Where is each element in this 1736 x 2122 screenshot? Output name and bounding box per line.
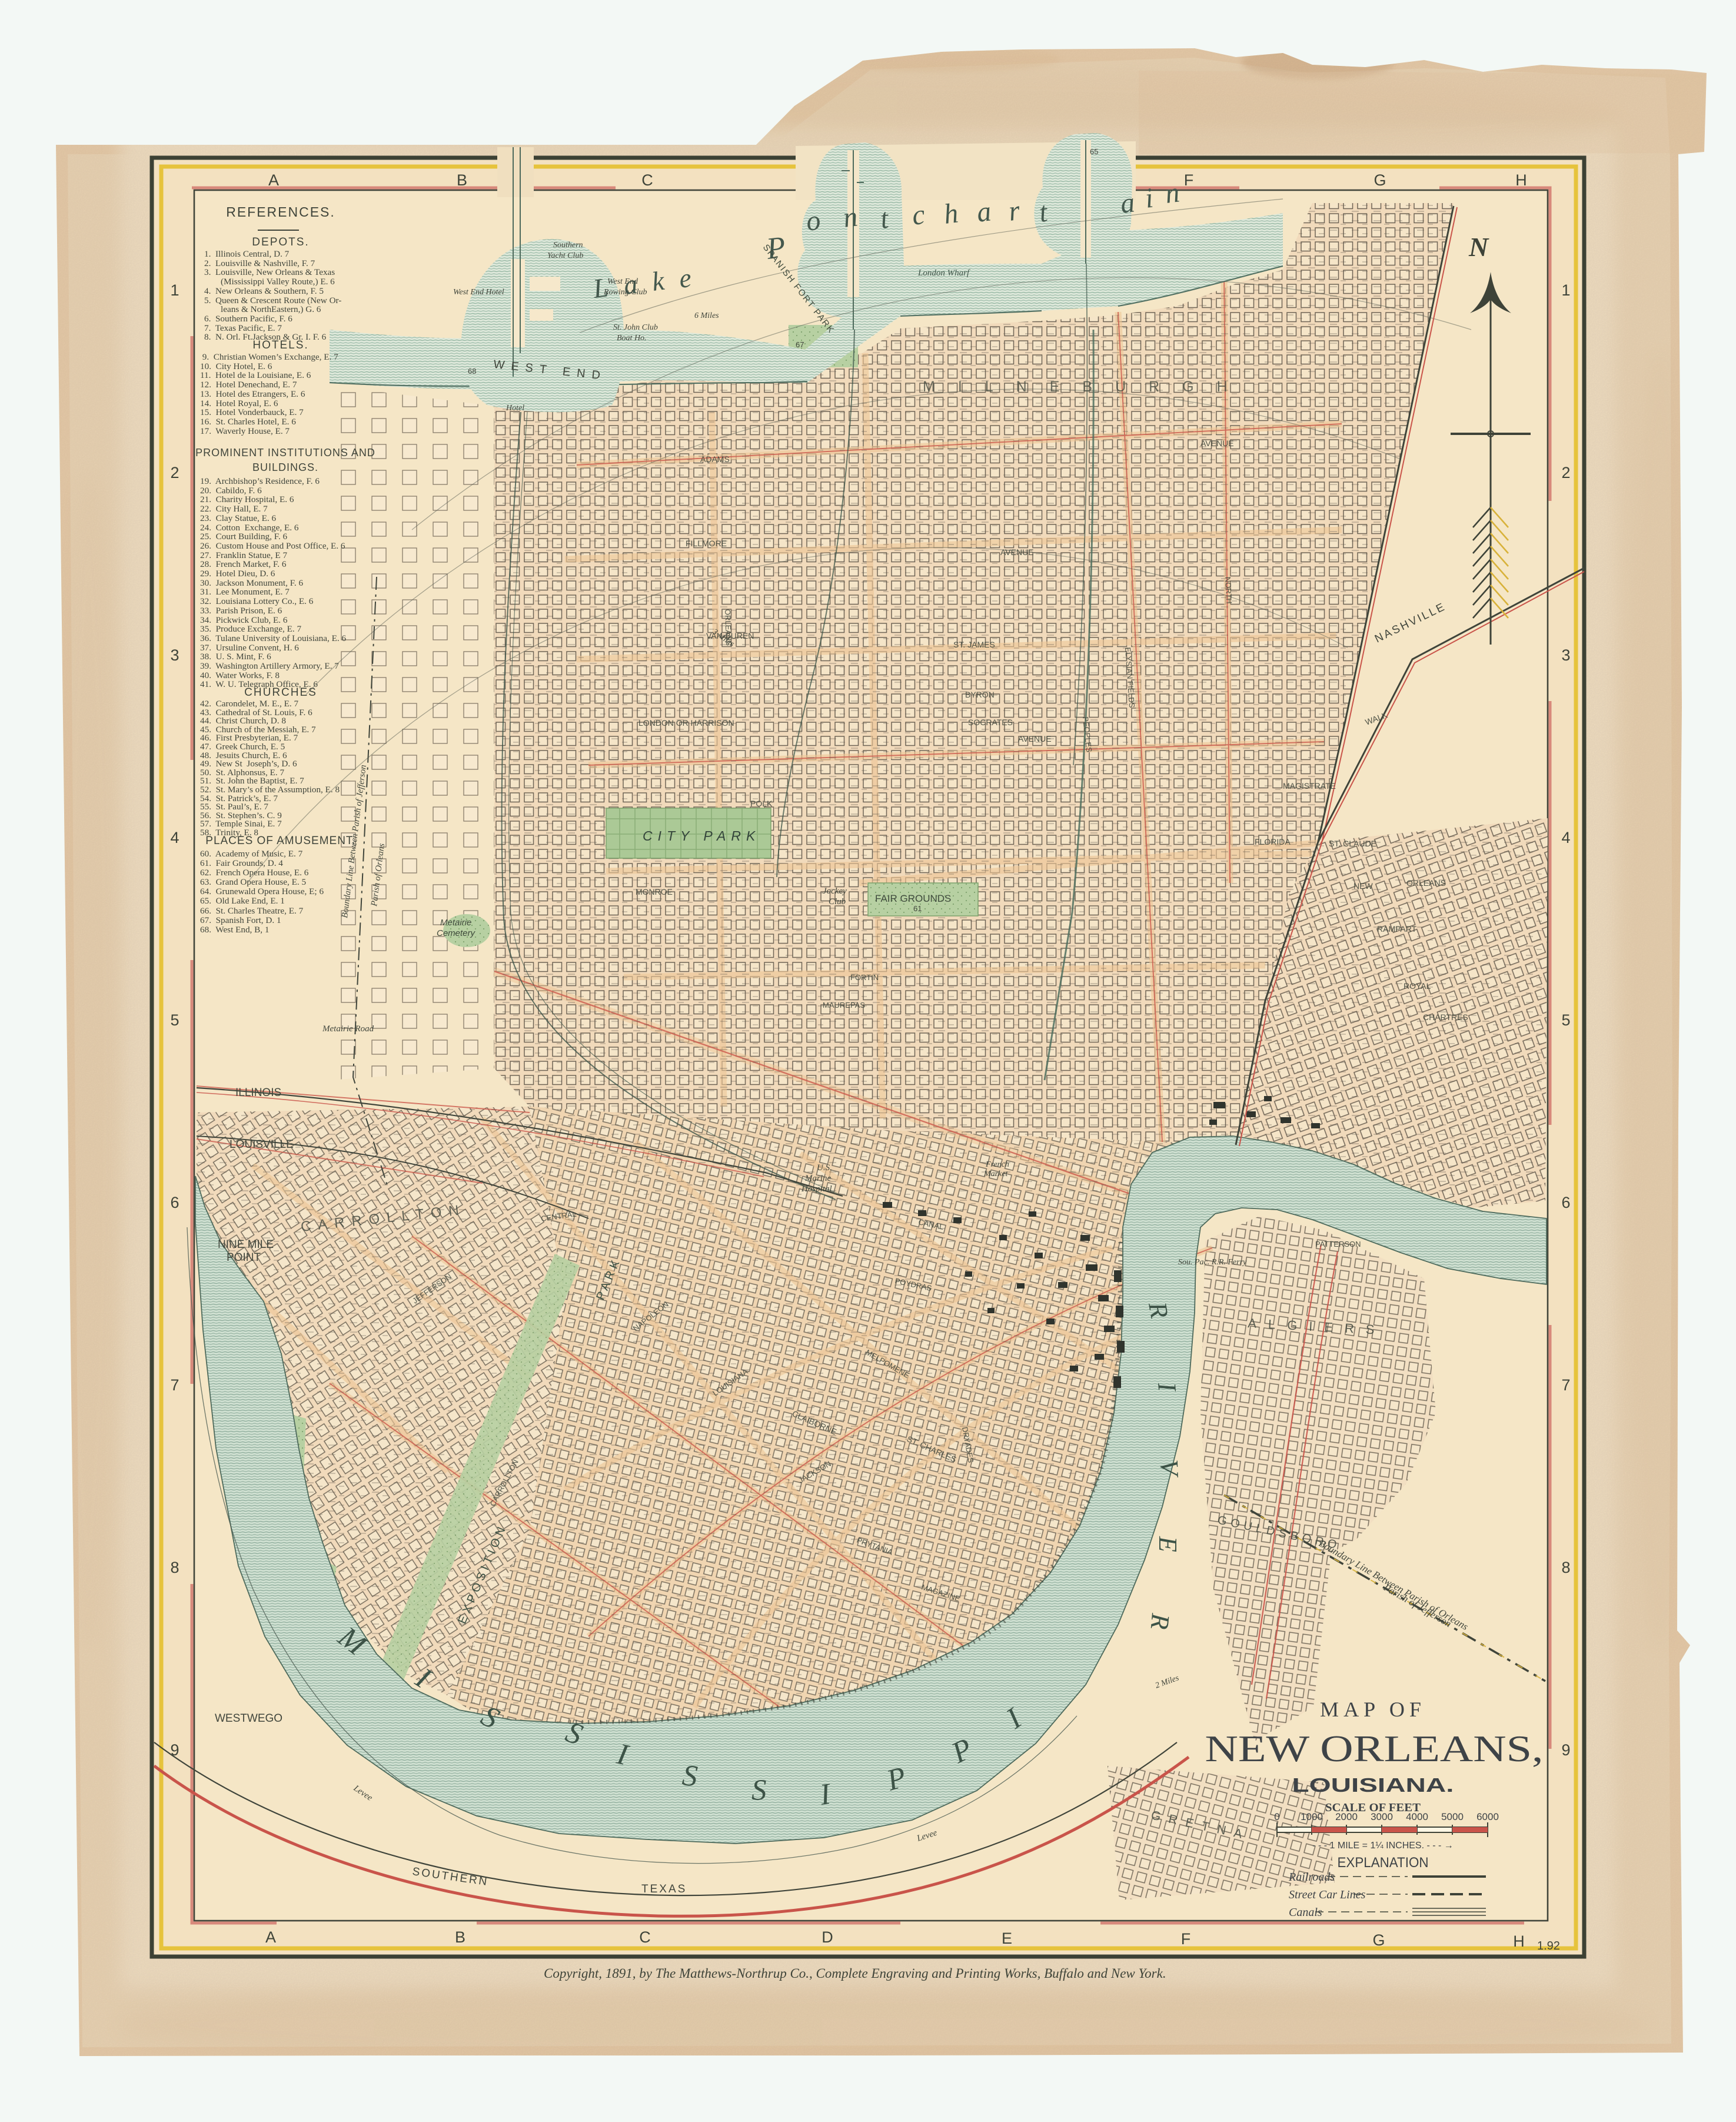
svg-text:68: 68 bbox=[468, 367, 476, 376]
svg-text:4000: 4000 bbox=[1406, 1811, 1428, 1822]
svg-text:NEW ORLEANS,: NEW ORLEANS, bbox=[1205, 1728, 1544, 1769]
svg-text:BYRON: BYRON bbox=[965, 690, 995, 699]
svg-text:Southern: Southern bbox=[553, 241, 583, 250]
svg-text:D: D bbox=[822, 1928, 833, 1946]
svg-text:NORTH: NORTH bbox=[1223, 576, 1233, 604]
svg-text:Yacht Club: Yacht Club bbox=[547, 251, 583, 260]
svg-text:MAP OF: MAP OF bbox=[1320, 1698, 1426, 1721]
svg-text:8: 8 bbox=[170, 1559, 179, 1576]
svg-text:1: 1 bbox=[1561, 281, 1570, 299]
svg-text:POINT: POINT bbox=[227, 1251, 261, 1264]
svg-text:65: 65 bbox=[1090, 147, 1098, 156]
svg-text:F: F bbox=[1181, 1930, 1191, 1948]
svg-text:61: 61 bbox=[913, 904, 922, 913]
svg-text:B: B bbox=[455, 1928, 465, 1946]
svg-text:6000: 6000 bbox=[1476, 1811, 1499, 1822]
svg-text:8: 8 bbox=[1561, 1559, 1570, 1576]
svg-text:AVENUE: AVENUE bbox=[1200, 439, 1234, 448]
svg-text:EXPLANATION: EXPLANATION bbox=[1338, 1855, 1429, 1871]
svg-text:ADAMS: ADAMS bbox=[700, 454, 730, 464]
svg-text:MAUREPAS: MAUREPAS bbox=[823, 1001, 865, 1009]
svg-text:- - - 1 MILE = 1¼ INCHES. - -: - - - 1 MILE = 1¼ INCHES. - - - → bbox=[1312, 1841, 1454, 1851]
svg-text:4: 4 bbox=[170, 829, 179, 846]
svg-text:G: G bbox=[1373, 171, 1386, 189]
svg-text:Hotel: Hotel bbox=[505, 404, 524, 413]
svg-text:3: 3 bbox=[170, 646, 179, 664]
svg-text:S: S bbox=[751, 1774, 767, 1807]
svg-text:West End: West End bbox=[607, 277, 638, 286]
svg-text:6: 6 bbox=[170, 1194, 179, 1211]
svg-text:E: E bbox=[1002, 1930, 1012, 1947]
svg-text:Market: Market bbox=[983, 1170, 1009, 1178]
svg-text:FILLMORE: FILLMORE bbox=[686, 539, 727, 548]
svg-text:CITY PARK: CITY PARK bbox=[643, 828, 760, 844]
svg-text:St. John Club: St. John Club bbox=[613, 323, 658, 332]
svg-text:U.S.: U.S. bbox=[817, 1163, 832, 1173]
svg-text:B: B bbox=[457, 171, 467, 189]
svg-text:FLORIDA: FLORIDA bbox=[1255, 837, 1291, 846]
svg-text:A: A bbox=[265, 1928, 276, 1946]
svg-text:MILNEBURGH: MILNEBURGH bbox=[923, 378, 1251, 395]
svg-text:FAIR GROUNDS: FAIR GROUNDS bbox=[875, 893, 951, 904]
svg-text:N: N bbox=[1468, 232, 1489, 262]
svg-text:Jockey: Jockey bbox=[823, 886, 847, 896]
svg-text:67: 67 bbox=[796, 340, 804, 349]
svg-text:SOCRATES: SOCRATES bbox=[968, 718, 1013, 727]
svg-text:9: 9 bbox=[1561, 1741, 1570, 1759]
svg-text:Marine: Marine bbox=[804, 1174, 832, 1183]
svg-text:H: H bbox=[1513, 1932, 1525, 1950]
svg-text:Sou. Pac. R.R. Ferry: Sou. Pac. R.R. Ferry bbox=[1178, 1258, 1247, 1267]
svg-text:ILLINOIS: ILLINOIS bbox=[235, 1087, 281, 1099]
svg-text:C: C bbox=[639, 1928, 651, 1946]
svg-text:Metairie: Metairie bbox=[440, 918, 471, 928]
svg-text:LOUISVILLE: LOUISVILLE bbox=[230, 1138, 294, 1151]
svg-text:Railroads: Railroads bbox=[1288, 1871, 1335, 1884]
svg-text:PATTERSON: PATTERSON bbox=[1315, 1240, 1361, 1248]
svg-text:7: 7 bbox=[170, 1376, 179, 1394]
svg-text:FORTIN: FORTIN bbox=[850, 973, 879, 982]
svg-text:Canals: Canals bbox=[1289, 1906, 1322, 1919]
svg-text:1000: 1000 bbox=[1301, 1811, 1323, 1822]
svg-text:7: 7 bbox=[1561, 1376, 1570, 1394]
svg-text:ORLEANS: ORLEANS bbox=[1406, 878, 1446, 888]
svg-text:NINE MILE: NINE MILE bbox=[218, 1238, 274, 1251]
svg-text:1: 1 bbox=[170, 281, 179, 299]
svg-text:2000: 2000 bbox=[1335, 1811, 1358, 1822]
svg-text:West End Hotel: West End Hotel bbox=[453, 288, 504, 297]
svg-text:Copyright, 1891, by The Matthe: Copyright, 1891, by The Matthews-Northru… bbox=[544, 1966, 1166, 1981]
svg-text:CHARTRES: CHARTRES bbox=[1423, 1012, 1468, 1022]
svg-text:NEW: NEW bbox=[1353, 881, 1373, 891]
svg-text:LOUISIANA.: LOUISIANA. bbox=[1292, 1774, 1454, 1796]
svg-text:Cemetery: Cemetery bbox=[437, 928, 476, 938]
svg-text:2: 2 bbox=[1561, 464, 1570, 481]
svg-text:Boat Ho.: Boat Ho. bbox=[617, 334, 647, 343]
svg-text:ST. JAMES: ST. JAMES bbox=[953, 640, 995, 649]
svg-text:Hospital: Hospital bbox=[801, 1184, 832, 1194]
svg-text:ST. CLAUDE: ST. CLAUDE bbox=[1329, 839, 1376, 848]
svg-text:RAMPART: RAMPART bbox=[1377, 924, 1417, 934]
svg-text:C: C bbox=[641, 171, 653, 189]
svg-text:2: 2 bbox=[170, 464, 179, 481]
svg-text:9: 9 bbox=[170, 1741, 179, 1759]
svg-text:3000: 3000 bbox=[1371, 1811, 1393, 1822]
svg-text:6: 6 bbox=[1561, 1194, 1570, 1211]
svg-text:LONDON OR HARRISON: LONDON OR HARRISON bbox=[638, 718, 734, 728]
svg-text:Metairie Road: Metairie Road bbox=[322, 1024, 374, 1034]
svg-text:Rowing Club: Rowing Club bbox=[603, 288, 647, 297]
svg-text:F: F bbox=[1184, 171, 1194, 189]
svg-text:1.92: 1.92 bbox=[1537, 1940, 1560, 1952]
svg-text:4: 4 bbox=[1561, 829, 1570, 846]
svg-text:A: A bbox=[268, 171, 279, 189]
svg-text:H: H bbox=[1515, 171, 1527, 189]
svg-text:Club: Club bbox=[829, 897, 846, 906]
svg-text:R: R bbox=[1145, 1612, 1175, 1630]
svg-text:POLK: POLK bbox=[750, 799, 773, 808]
svg-text:AVENUE: AVENUE bbox=[1000, 547, 1034, 557]
svg-text:London Wharf: London Wharf bbox=[917, 268, 970, 278]
svg-text:E: E bbox=[1153, 1536, 1182, 1552]
svg-text:AVENUE: AVENUE bbox=[1018, 734, 1052, 743]
svg-text:Street Car Lines: Street Car Lines bbox=[1289, 1888, 1366, 1901]
svg-text:6 Miles: 6 Miles bbox=[694, 311, 719, 320]
svg-text:MONROE: MONROE bbox=[636, 887, 673, 896]
svg-text:French: French bbox=[985, 1160, 1009, 1169]
svg-text:5: 5 bbox=[170, 1011, 179, 1029]
svg-text:ROYAL: ROYAL bbox=[1404, 981, 1431, 991]
svg-text:3: 3 bbox=[1561, 646, 1570, 664]
svg-text:MAGISTRATE: MAGISTRATE bbox=[1283, 781, 1336, 791]
svg-text:0: 0 bbox=[1274, 1811, 1279, 1822]
svg-text:5000: 5000 bbox=[1441, 1811, 1464, 1822]
svg-text:G: G bbox=[1372, 1931, 1385, 1949]
svg-text:WESTWEGO: WESTWEGO bbox=[215, 1712, 282, 1725]
svg-text:TEXAS: TEXAS bbox=[641, 1883, 687, 1895]
svg-text:5: 5 bbox=[1561, 1011, 1570, 1029]
